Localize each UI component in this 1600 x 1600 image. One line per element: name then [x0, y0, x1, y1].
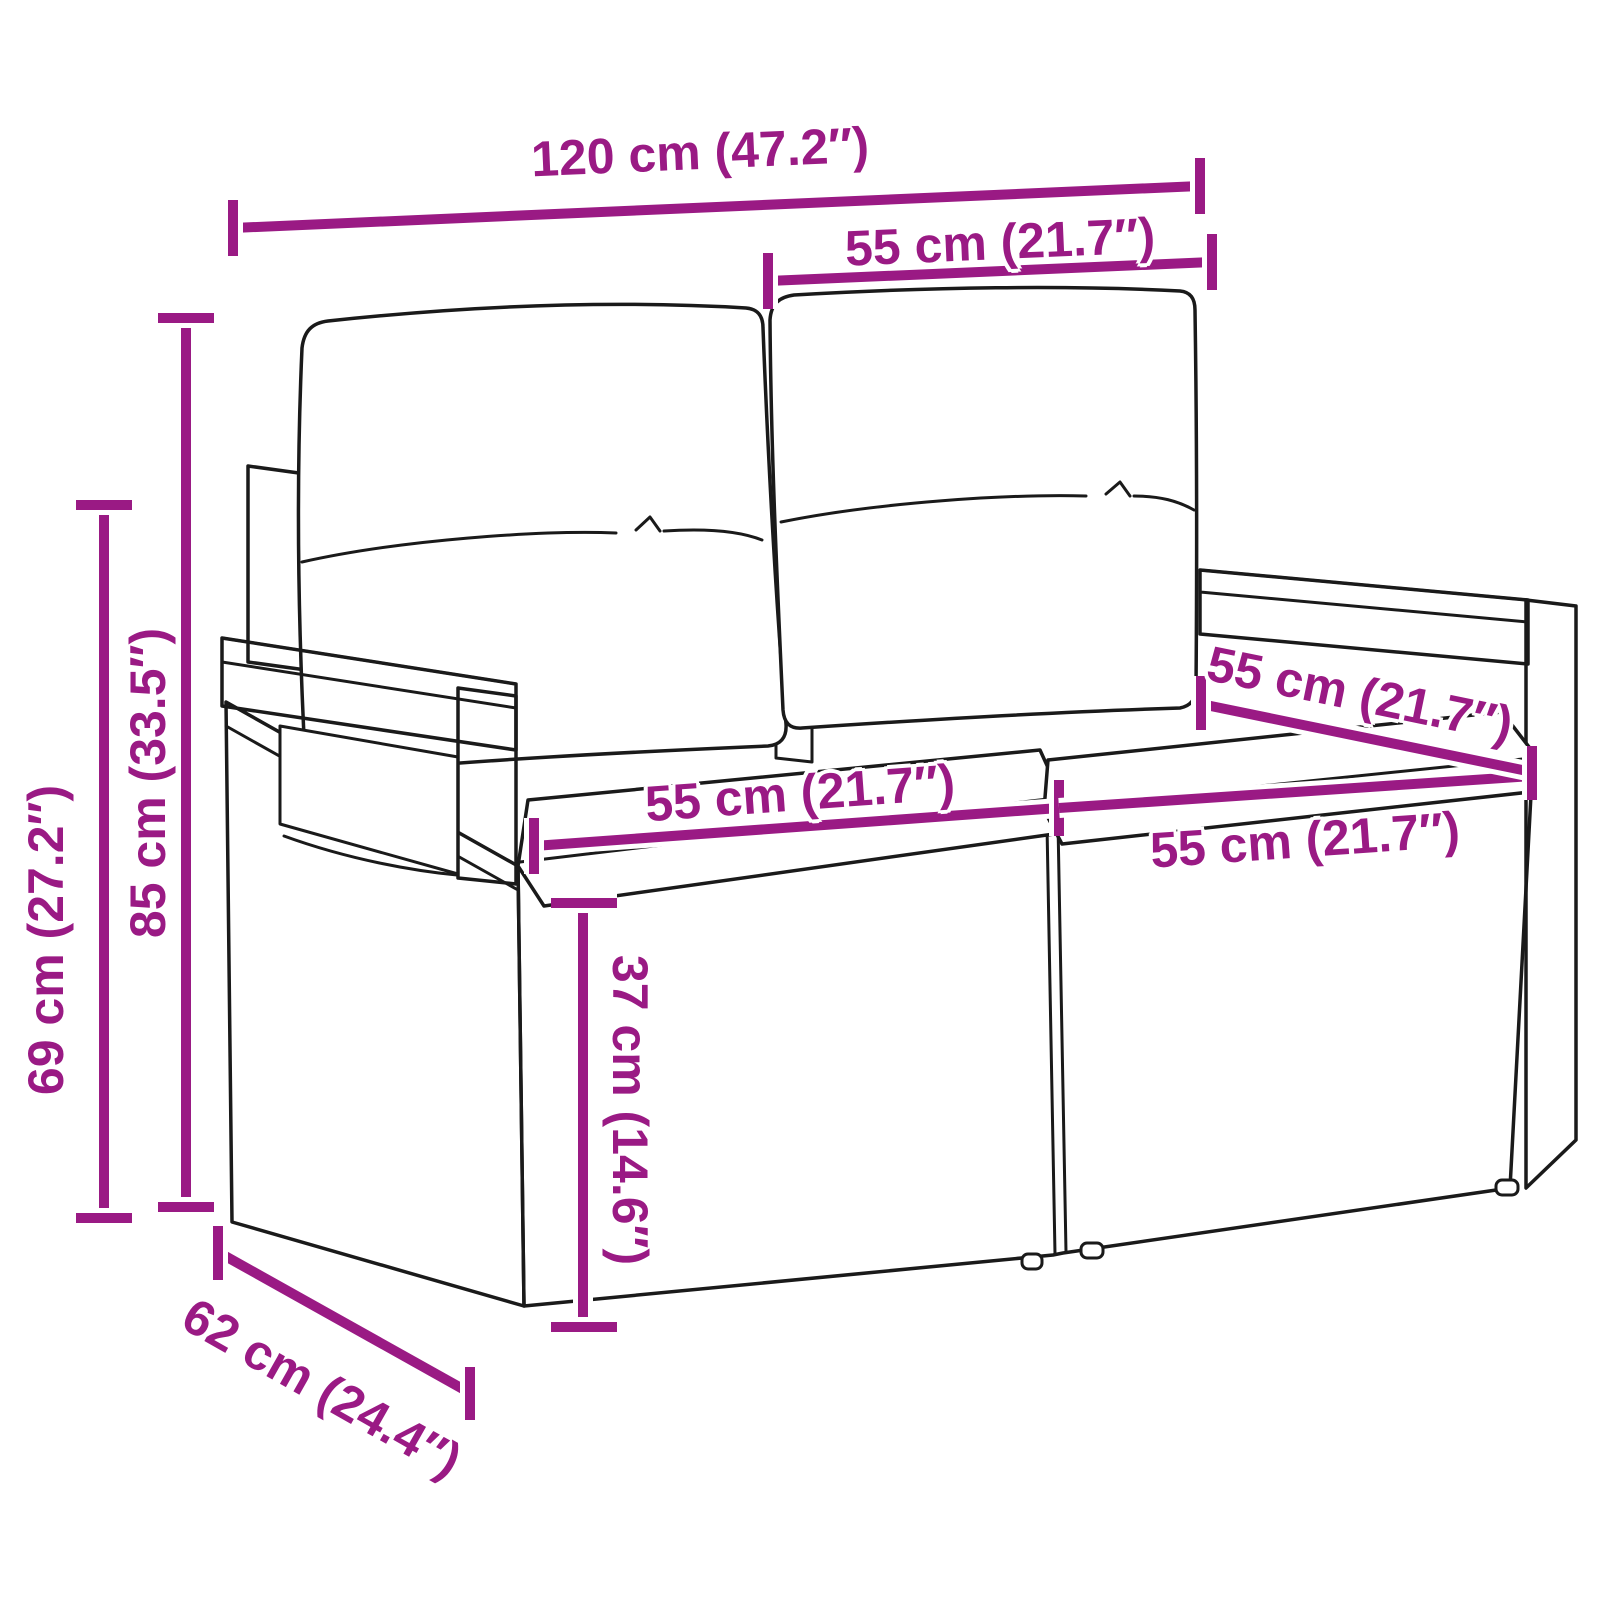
dimension-label-module-width-top: 55 cm (21.7″): [844, 210, 1156, 273]
dimension-diagram: 120 cm (47.2″) 55 cm (21.7″) 85 cm (33.5…: [0, 0, 1600, 1600]
dimension-label-overall-width: 120 cm (47.2″): [530, 120, 870, 185]
dimension-label-overall-height: 85 cm (33.5″): [123, 628, 173, 938]
dimension-label-armrest-height: 69 cm (27.2″): [21, 785, 71, 1095]
dimension-label-seat-height: 37 cm (14.6″): [605, 955, 655, 1265]
dimension-seat-width-right: [1059, 776, 1532, 808]
